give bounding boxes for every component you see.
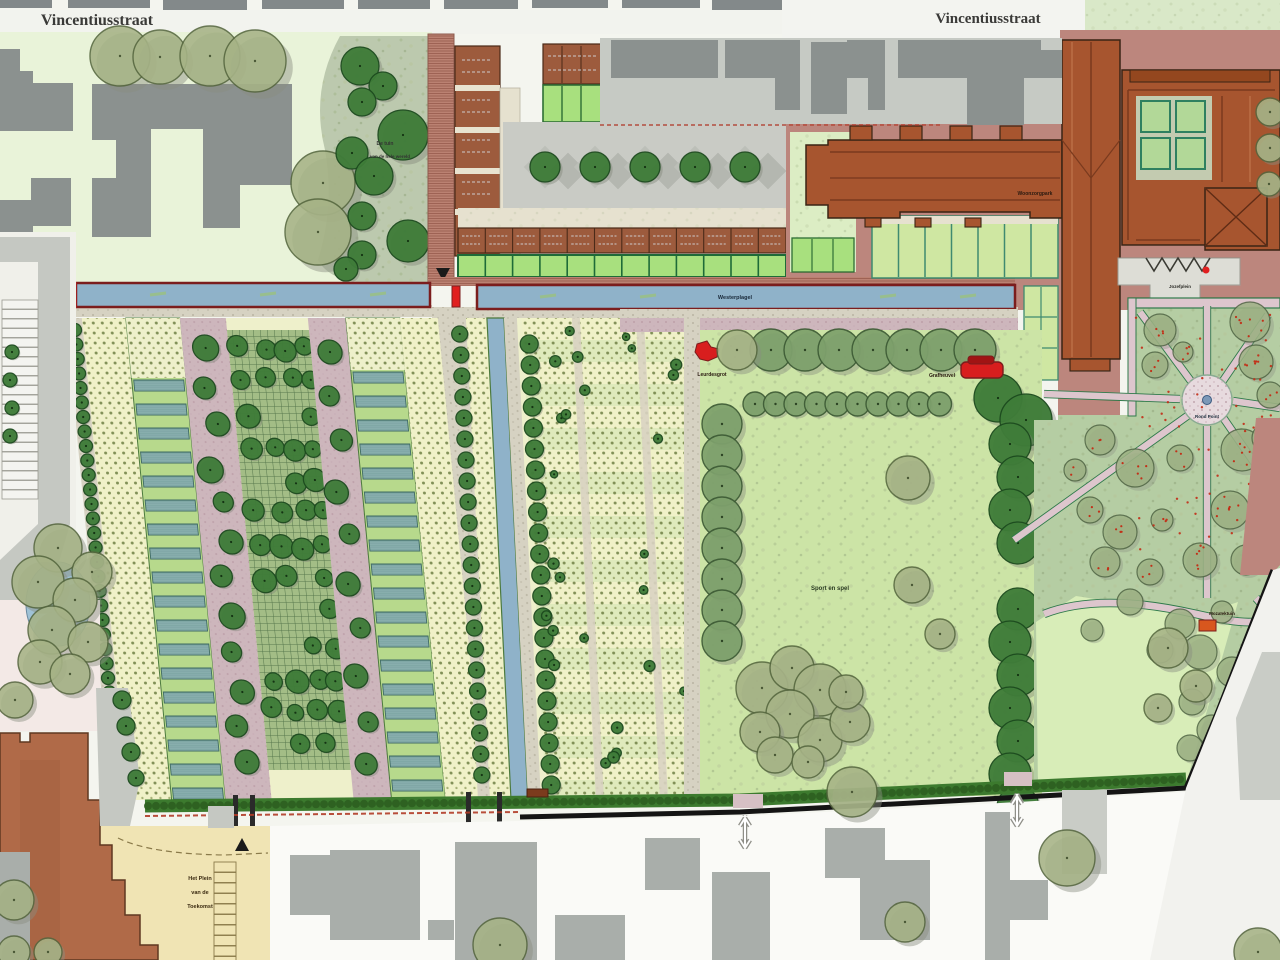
svg-text:Vincentiusstraat: Vincentiusstraat <box>935 11 1040 27</box>
svg-text:De tuin: De tuin <box>377 141 394 147</box>
svg-text:Vincentiusstraat: Vincentiusstraat <box>41 12 154 29</box>
svg-text:van de: van de <box>191 890 208 896</box>
svg-text:Grafheuvel: Grafheuvel <box>929 373 956 379</box>
svg-text:Het Plein: Het Plein <box>188 876 212 882</box>
svg-text:van de hele wereld: van de hele wereld <box>370 154 410 159</box>
svg-text:Mozaïektuin: Mozaïektuin <box>1209 611 1235 616</box>
svg-text:Jozefplein: Jozefplein <box>1169 284 1191 289</box>
svg-text:Westerplagel: Westerplagel <box>718 295 753 301</box>
svg-text:Rond Point: Rond Point <box>1195 414 1219 419</box>
svg-text:Toekomst: Toekomst <box>187 904 213 910</box>
svg-text:Sport en spel: Sport en spel <box>811 586 849 592</box>
svg-text:Woonzorgpark: Woonzorgpark <box>1018 191 1053 197</box>
svg-text:Leurdesgrot: Leurdesgrot <box>697 372 727 378</box>
